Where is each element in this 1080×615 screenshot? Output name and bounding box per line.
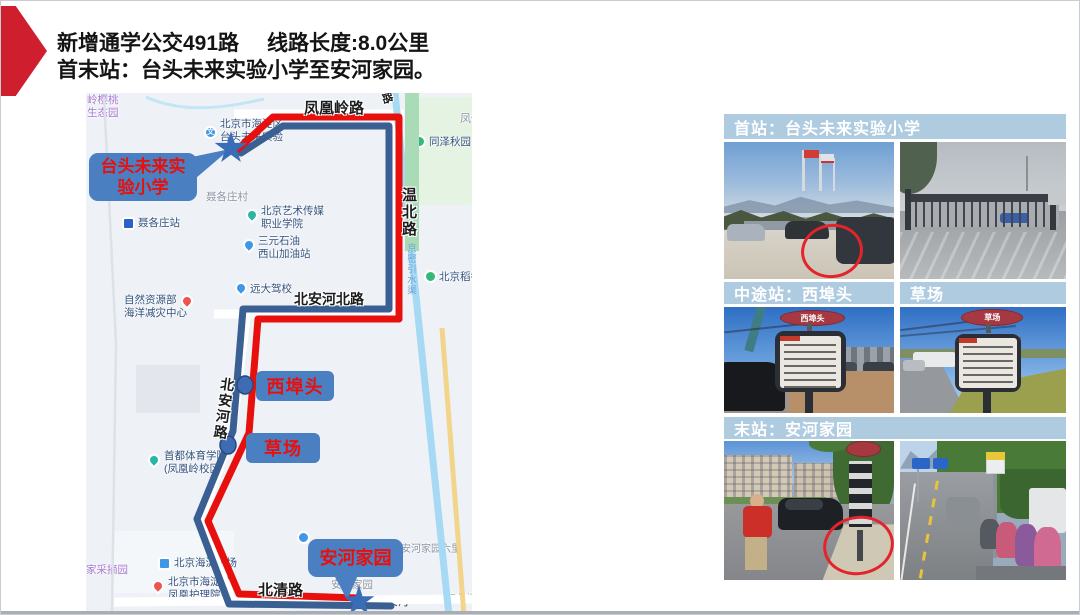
photo-caochang-stop: 草场 <box>900 307 1066 413</box>
gate-bars <box>907 202 1060 227</box>
stop-marker-xibutou <box>237 376 253 394</box>
slide-bottom-border <box>1 611 1080 615</box>
gate-post <box>905 189 911 230</box>
man-pants <box>745 537 767 570</box>
stream-line <box>146 97 264 108</box>
blue-road-sign <box>933 458 948 469</box>
flag <box>804 150 819 158</box>
photo-anhe-stop-man <box>724 441 894 580</box>
sidewalk-edge <box>976 566 1066 580</box>
caption-mid-station-right: 草场 <box>900 282 1066 304</box>
flag <box>821 154 835 163</box>
bus-info-board <box>955 334 1021 392</box>
sign-pole <box>805 392 814 413</box>
gate-beam <box>907 194 1060 202</box>
route-map: 岭樱桃生态园 文 北京市海淀区台头未来实验 聂各庄村 聂各庄站 北京艺术传媒职业… <box>86 93 472 613</box>
board-header <box>959 338 976 343</box>
caption-last-station: 末站：安河家园 <box>724 417 1066 439</box>
photo-xibutou-stop: 西埠头 <box>724 307 894 413</box>
stop-label-caochang: 草场 <box>246 433 320 463</box>
title-arrow-icon <box>1 6 47 96</box>
timetable-panel <box>780 336 841 388</box>
stop-label-xibutou: 西埠头 <box>256 371 334 401</box>
station-photos-panel: 首站：台头未来实验小学 <box>724 114 1066 581</box>
caochang-stop-sign: 草场 <box>961 309 1023 326</box>
road-label-fenghuangling: 凤凰岭路 <box>304 97 364 118</box>
man-red-shirt <box>743 506 772 538</box>
road-label-wenbei: 温北路 <box>398 187 419 238</box>
sign-pole <box>917 469 919 502</box>
white-box-truck <box>1029 488 1066 532</box>
route-length: 线路长度:8.0公里 <box>267 27 429 57</box>
grey-car <box>946 497 979 522</box>
bus-route-blue-line <box>197 126 391 606</box>
van <box>903 360 925 371</box>
timetable-panel <box>959 338 1016 388</box>
pole <box>1026 156 1028 192</box>
caption-mid-stations: 中途站：西埠头 <box>724 282 894 304</box>
guard-house <box>1048 183 1066 205</box>
start-callout: 台头未来实 验小学 <box>89 153 197 201</box>
stop-sign-top <box>846 441 880 457</box>
board-header <box>780 336 800 341</box>
photo-anhe-street <box>900 441 1066 580</box>
car-silver <box>727 224 764 240</box>
flagpole <box>833 158 836 191</box>
blue-road-sign <box>912 458 930 469</box>
slide: 新增通学公交491路 线路长度:8.0公里 首末站：台头未来实验小学至安河家园。… <box>0 0 1080 615</box>
car-windows <box>785 499 822 510</box>
sign-pole <box>983 392 991 413</box>
slide-title: 新增通学公交491路 线路长度:8.0公里 <box>57 27 429 57</box>
sign-bracket <box>986 324 991 334</box>
road-label-fragment-right: 凤仙 <box>460 113 472 126</box>
bus-info-board <box>775 331 846 391</box>
canal-label: 京密引水渠 <box>403 243 417 296</box>
photo-school-gate <box>900 142 1066 279</box>
route-terminals: 首末站：台头未来实验小学至安河家园。 <box>57 54 435 84</box>
caption-first-station: 首站：台头未来实验小学 <box>724 114 1066 139</box>
road-label-beianhe-north: 北安河北路 <box>294 289 364 309</box>
plate-yellow-band <box>986 452 1004 460</box>
road-label-beiqing: 北清路 <box>258 579 303 600</box>
apartment-block <box>724 455 792 499</box>
photo-school-flag <box>724 142 894 279</box>
xibutou-stop-sign: 西埠头 <box>780 310 845 326</box>
ground-reflections <box>900 232 1066 279</box>
route-name: 新增通学公交491路 <box>57 27 239 57</box>
end-callout: 安河家园 <box>308 539 403 577</box>
